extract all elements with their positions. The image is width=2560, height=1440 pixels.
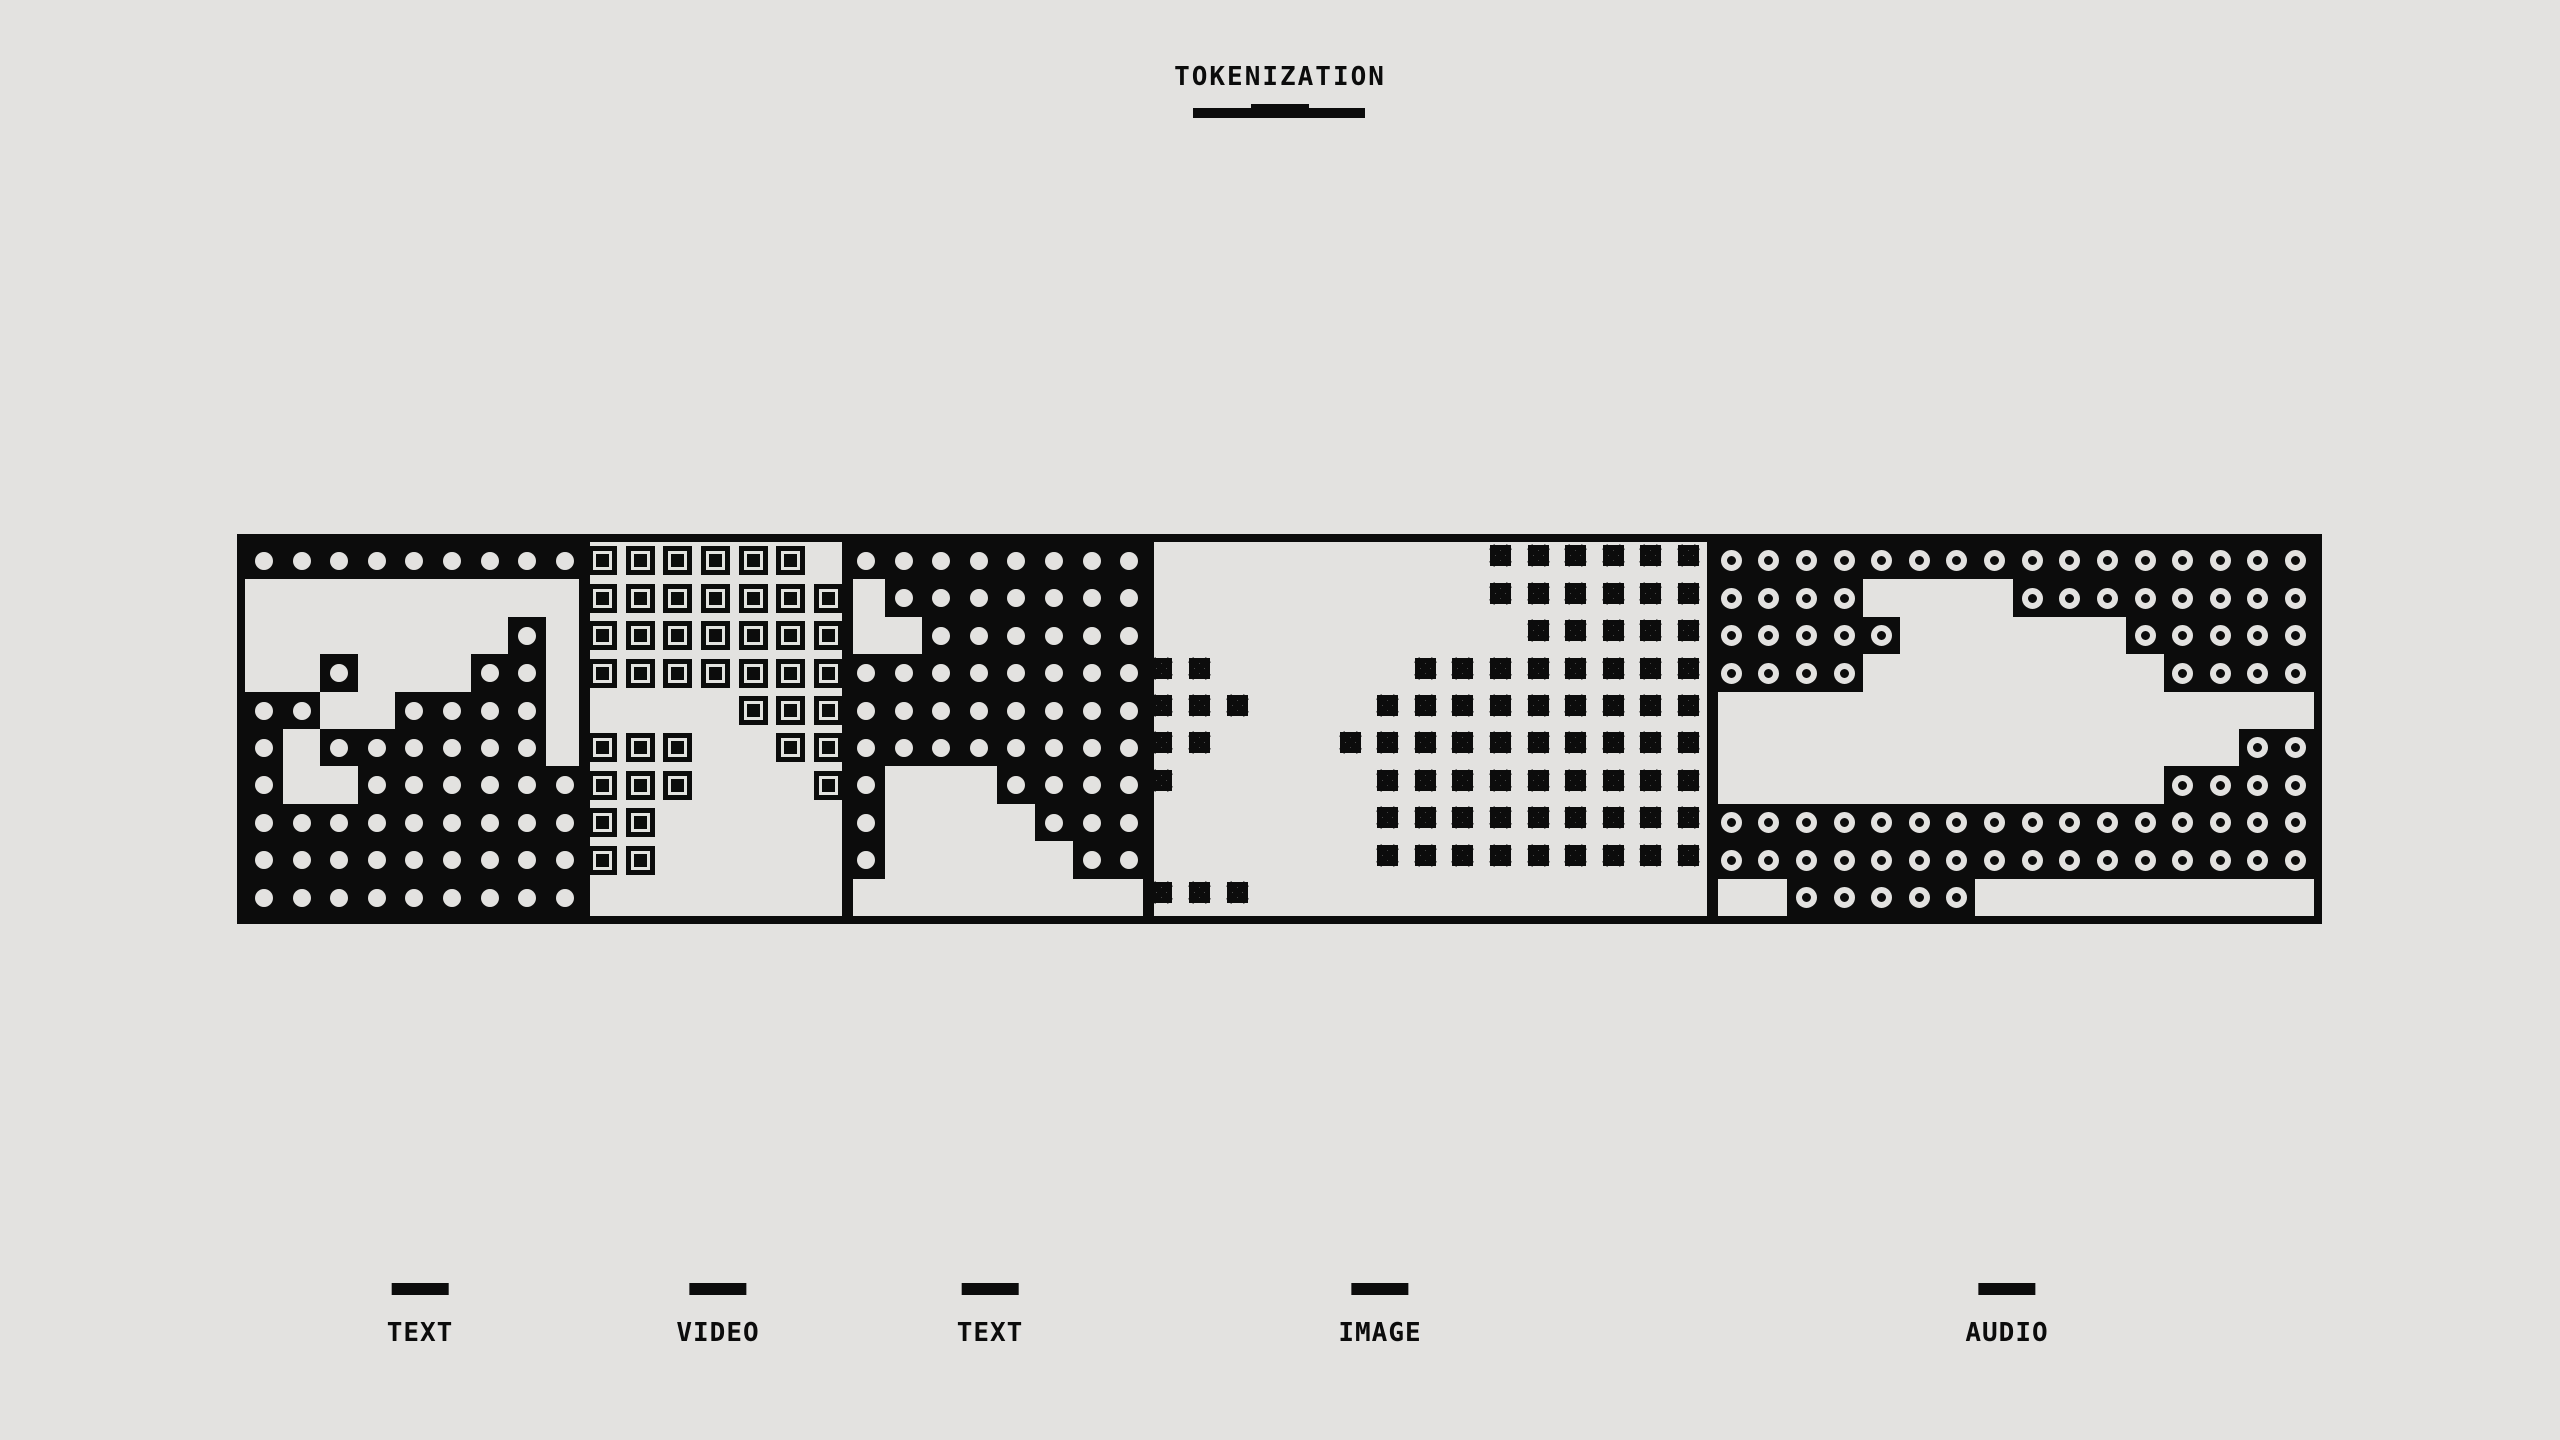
image-token-cell: [1637, 692, 1674, 729]
audio-token-cell: [2126, 579, 2164, 617]
audio-token-cell: [1975, 542, 2013, 579]
empty-cell: [772, 766, 809, 804]
text-token-cell: [245, 841, 283, 879]
text-token-cell: [395, 841, 433, 879]
empty-cell: [1411, 617, 1449, 654]
image-token-cell: [1637, 654, 1674, 692]
image-token-cell: [1524, 729, 1562, 766]
text-token-cell: [922, 729, 960, 766]
x-icon: [1603, 545, 1624, 566]
text-token-cell: [320, 542, 358, 579]
x-icon: [1377, 732, 1398, 753]
x-icon: [1377, 695, 1398, 716]
x-icon: [1603, 732, 1624, 753]
text-token-cell: [471, 879, 508, 916]
empty-cell: [1787, 692, 1825, 729]
text-token-cell: [358, 729, 395, 766]
text-token-cell: [1035, 766, 1073, 804]
audio-token-cell: [1750, 804, 1787, 841]
empty-cell: [696, 766, 734, 804]
empty-cell: [1185, 804, 1223, 841]
empty-cell: [1938, 654, 1975, 692]
x-icon: [1189, 732, 1210, 753]
empty-cell: [1298, 617, 1336, 654]
audio-token-cell: [2201, 841, 2239, 879]
text-token-cell: [395, 766, 433, 804]
audio-token-cell: [1863, 617, 1900, 654]
image-token-cell: [1524, 766, 1562, 804]
empty-cell: [2051, 654, 2088, 692]
x-icon: [1678, 770, 1699, 791]
audio-token-cell: [2051, 542, 2088, 579]
empty-cell: [1374, 579, 1411, 617]
x-icon: [1340, 732, 1361, 753]
text-token-cell: [997, 542, 1035, 579]
x-icon: [1565, 807, 1586, 828]
empty-cell: [1336, 654, 1374, 692]
legend-item-text: TEXT: [387, 1283, 454, 1348]
text-token-cell: [508, 841, 546, 879]
segment-seam: [1143, 534, 1154, 924]
empty-cell: [1863, 579, 1900, 617]
image-token-cell: [1486, 766, 1524, 804]
audio-token-cell: [1863, 841, 1900, 879]
empty-cell: [1975, 692, 2013, 729]
image-token-cell: [1599, 617, 1637, 654]
x-icon: [1528, 845, 1549, 866]
x-icon: [1678, 658, 1699, 679]
empty-cell: [2126, 729, 2164, 766]
audio-token-cell: [1900, 841, 1938, 879]
empty-cell: [1562, 879, 1599, 916]
text-token-cell: [997, 617, 1035, 654]
text-token-cell: [922, 579, 960, 617]
text-token-cell: [433, 804, 471, 841]
video-token-cell: [772, 692, 809, 729]
empty-cell: [1637, 879, 1674, 916]
x-icon: [1189, 695, 1210, 716]
audio-token-cell: [1825, 879, 1863, 916]
empty-cell: [245, 654, 283, 692]
video-token-cell: [772, 654, 809, 692]
empty-cell: [1261, 617, 1298, 654]
x-icon: [1452, 732, 1473, 753]
empty-cell: [1336, 617, 1374, 654]
x-icon: [1227, 695, 1248, 716]
image-token-cell: [1486, 542, 1524, 579]
text-token-cell: [320, 729, 358, 766]
empty-cell: [1750, 879, 1787, 916]
empty-cell: [1261, 841, 1298, 879]
video-token-cell: [621, 729, 659, 766]
empty-cell: [395, 654, 433, 692]
empty-cell: [1449, 879, 1486, 916]
audio-token-cell: [1863, 879, 1900, 916]
legend-label: AUDIO: [1965, 1318, 2048, 1348]
text-token-cell: [885, 692, 922, 729]
empty-cell: [320, 766, 358, 804]
empty-cell: [696, 841, 734, 879]
text-token-cell: [320, 879, 358, 916]
image-token-cell: [1411, 729, 1449, 766]
x-icon: [1151, 732, 1172, 753]
x-icon: [1528, 620, 1549, 641]
x-icon: [1528, 770, 1549, 791]
empty-cell: [997, 804, 1035, 841]
empty-cell: [1938, 692, 1975, 729]
x-icon: [1678, 620, 1699, 641]
image-token-cell: [1524, 692, 1562, 729]
text-token-cell: [1035, 804, 1073, 841]
empty-cell: [1336, 841, 1374, 879]
legend-item-image: IMAGE: [1338, 1283, 1421, 1348]
audio-token-cell: [2164, 579, 2201, 617]
text-token-cell: [283, 841, 320, 879]
image-token-cell: [1599, 542, 1637, 579]
audio-token-cell: [2201, 579, 2239, 617]
empty-cell: [1261, 804, 1298, 841]
text-token-cell: [433, 729, 471, 766]
modality-legend: TEXTVIDEOTEXTIMAGEAUDIO: [0, 1283, 2560, 1363]
empty-cell: [2013, 766, 2051, 804]
text-token-cell: [1035, 729, 1073, 766]
empty-cell: [1261, 692, 1298, 729]
title-underline-notch: [1251, 104, 1309, 118]
audio-token-cell: [1750, 617, 1787, 654]
text-token-cell: [320, 654, 358, 692]
audio-token-cell: [1750, 841, 1787, 879]
image-token-cell: [1599, 766, 1637, 804]
video-token-cell: [659, 729, 696, 766]
audio-token-cell: [1825, 841, 1863, 879]
image-token-cell: [1562, 542, 1599, 579]
text-token-cell: [1073, 579, 1110, 617]
x-icon: [1565, 620, 1586, 641]
text-token-cell: [997, 766, 1035, 804]
audio-token-cell: [2051, 841, 2088, 879]
empty-cell: [433, 654, 471, 692]
image-token-cell: [1486, 692, 1524, 729]
video-token-cell: [734, 542, 772, 579]
empty-cell: [1336, 542, 1374, 579]
audio-token-cell: [1750, 654, 1787, 692]
legend-dash: [392, 1283, 449, 1295]
empty-cell: [1298, 692, 1336, 729]
audio-token-cell: [2126, 841, 2164, 879]
audio-token-cell: [2126, 617, 2164, 654]
text-token-cell: [358, 879, 395, 916]
empty-cell: [2088, 654, 2126, 692]
empty-cell: [508, 579, 546, 617]
text-token-cell: [1073, 841, 1110, 879]
audio-token-cell: [2239, 654, 2276, 692]
image-token-cell: [1637, 766, 1674, 804]
empty-cell: [1336, 692, 1374, 729]
image-token-cell: [1411, 804, 1449, 841]
video-token-cell: [772, 579, 809, 617]
empty-cell: [1223, 766, 1261, 804]
image-token-cell: [1562, 654, 1599, 692]
empty-cell: [1298, 879, 1336, 916]
empty-cell: [1298, 841, 1336, 879]
text-token-cell: [960, 542, 997, 579]
empty-cell: [734, 804, 772, 841]
empty-cell: [320, 579, 358, 617]
image-token-cell: [1486, 729, 1524, 766]
empty-cell: [997, 879, 1035, 916]
empty-cell: [1374, 617, 1411, 654]
empty-cell: [283, 654, 320, 692]
empty-cell: [1975, 579, 2013, 617]
empty-cell: [659, 692, 696, 729]
video-token-cell: [659, 542, 696, 579]
empty-cell: [2088, 617, 2126, 654]
empty-cell: [1223, 579, 1261, 617]
image-token-cell: [1562, 766, 1599, 804]
empty-cell: [2013, 729, 2051, 766]
text-token-cell: [508, 879, 546, 916]
audio-token-cell: [2088, 542, 2126, 579]
text-token-cell: [358, 766, 395, 804]
audio-token-cell: [2088, 804, 2126, 841]
audio-token-cell: [1825, 542, 1863, 579]
empty-cell: [1863, 729, 1900, 766]
text-token-cell: [885, 542, 922, 579]
text-token-cell: [245, 804, 283, 841]
empty-cell: [1750, 692, 1787, 729]
empty-cell: [358, 579, 395, 617]
image-token-cell: [1637, 729, 1674, 766]
empty-cell: [1863, 654, 1900, 692]
text-token-cell: [508, 617, 546, 654]
text-token-cell: [997, 692, 1035, 729]
image-token-cell: [1223, 692, 1261, 729]
x-icon: [1640, 695, 1661, 716]
x-icon: [1565, 770, 1586, 791]
x-icon: [1528, 658, 1549, 679]
legend-dash: [962, 1283, 1019, 1295]
text-token-cell: [1035, 692, 1073, 729]
legend-item-text: TEXT: [957, 1283, 1024, 1348]
text-token-cell: [283, 879, 320, 916]
empty-cell: [1486, 879, 1524, 916]
video-token-cell: [696, 542, 734, 579]
empty-cell: [1261, 654, 1298, 692]
empty-cell: [2013, 617, 2051, 654]
empty-cell: [960, 879, 997, 916]
image-token-cell: [1524, 804, 1562, 841]
empty-cell: [1336, 579, 1374, 617]
legend-item-video: VIDEO: [676, 1283, 759, 1348]
legend-dash: [690, 1283, 747, 1295]
empty-cell: [1336, 766, 1374, 804]
empty-cell: [885, 804, 922, 841]
empty-cell: [1223, 654, 1261, 692]
empty-cell: [885, 841, 922, 879]
x-icon: [1415, 732, 1436, 753]
text-token-cell: [1035, 542, 1073, 579]
video-token-cell: [772, 542, 809, 579]
x-icon: [1565, 732, 1586, 753]
legend-label: IMAGE: [1338, 1318, 1421, 1348]
empty-cell: [2051, 617, 2088, 654]
audio-token-cell: [1825, 579, 1863, 617]
x-icon: [1640, 807, 1661, 828]
empty-cell: [696, 692, 734, 729]
empty-cell: [1975, 766, 2013, 804]
image-token-cell: [1336, 729, 1374, 766]
legend-label: TEXT: [957, 1318, 1024, 1348]
audio-token-cell: [1975, 804, 2013, 841]
x-icon: [1227, 882, 1248, 903]
empty-cell: [734, 729, 772, 766]
empty-cell: [1486, 617, 1524, 654]
empty-cell: [1900, 579, 1938, 617]
x-icon: [1640, 620, 1661, 641]
segment-seam: [1707, 534, 1718, 924]
image-token-cell: [1185, 654, 1223, 692]
video-token-cell: [621, 654, 659, 692]
x-icon: [1565, 845, 1586, 866]
x-icon: [1603, 658, 1624, 679]
image-token-cell: [1524, 579, 1562, 617]
empty-cell: [1298, 804, 1336, 841]
empty-cell: [1938, 766, 1975, 804]
text-token-cell: [997, 729, 1035, 766]
empty-cell: [2013, 654, 2051, 692]
audio-token-cell: [1938, 804, 1975, 841]
empty-cell: [1900, 654, 1938, 692]
empty-cell: [395, 579, 433, 617]
empty-cell: [283, 579, 320, 617]
empty-cell: [960, 804, 997, 841]
empty-cell: [659, 804, 696, 841]
audio-token-cell: [2051, 804, 2088, 841]
empty-cell: [659, 879, 696, 916]
empty-cell: [245, 617, 283, 654]
text-token-cell: [320, 804, 358, 841]
empty-cell: [1336, 804, 1374, 841]
audio-token-cell: [1787, 617, 1825, 654]
empty-cell: [2164, 879, 2201, 916]
image-token-cell: [1524, 542, 1562, 579]
x-icon: [1678, 845, 1699, 866]
x-icon: [1603, 695, 1624, 716]
audio-token-cell: [2164, 654, 2201, 692]
image-token-cell: [1562, 617, 1599, 654]
empty-cell: [2164, 729, 2201, 766]
empty-cell: [320, 617, 358, 654]
empty-cell: [696, 879, 734, 916]
text-token-cell: [960, 692, 997, 729]
empty-cell: [960, 841, 997, 879]
audio-token-cell: [1825, 804, 1863, 841]
video-token-cell: [772, 617, 809, 654]
legend-dash: [1979, 1283, 2036, 1295]
empty-cell: [2013, 692, 2051, 729]
audio-token-cell: [1900, 542, 1938, 579]
empty-cell: [1374, 879, 1411, 916]
text-token-cell: [471, 841, 508, 879]
empty-cell: [245, 579, 283, 617]
audio-token-cell: [2276, 617, 2314, 654]
audio-token-cell: [2239, 617, 2276, 654]
audio-token-cell: [1900, 879, 1938, 916]
empty-cell: [1863, 766, 1900, 804]
x-icon: [1603, 807, 1624, 828]
x-icon: [1415, 658, 1436, 679]
empty-cell: [2088, 729, 2126, 766]
empty-cell: [1449, 542, 1486, 579]
image-token-cell: [1411, 654, 1449, 692]
image-token-cell: [1562, 841, 1599, 879]
image-token-cell: [1185, 879, 1223, 916]
video-token-cell: [696, 579, 734, 617]
empty-cell: [2088, 879, 2126, 916]
audio-token-cell: [2201, 617, 2239, 654]
legend-item-audio: AUDIO: [1965, 1283, 2048, 1348]
text-token-cell: [433, 766, 471, 804]
audio-token-cell: [2239, 729, 2276, 766]
audio-token-cell: [2013, 841, 2051, 879]
text-token-cell: [471, 692, 508, 729]
empty-cell: [1825, 766, 1863, 804]
video-token-cell: [659, 617, 696, 654]
image-token-cell: [1449, 766, 1486, 804]
text-token-cell: [433, 841, 471, 879]
video-token-cell: [734, 692, 772, 729]
empty-cell: [1975, 654, 2013, 692]
text-token-cell: [885, 729, 922, 766]
text-token-cell: [358, 542, 395, 579]
x-icon: [1528, 732, 1549, 753]
text-token-cell: [508, 654, 546, 692]
audio-token-cell: [2276, 729, 2314, 766]
empty-cell: [1938, 617, 1975, 654]
empty-cell: [922, 879, 960, 916]
audio-token-cell: [2276, 542, 2314, 579]
image-token-cell: [1637, 542, 1674, 579]
x-icon: [1565, 695, 1586, 716]
image-token-cell: [1562, 692, 1599, 729]
x-icon: [1603, 620, 1624, 641]
empty-cell: [358, 654, 395, 692]
empty-cell: [358, 692, 395, 729]
audio-token-cell: [1787, 804, 1825, 841]
audio-token-cell: [2239, 841, 2276, 879]
text-token-cell: [922, 692, 960, 729]
text-token-cell: [960, 729, 997, 766]
empty-cell: [1449, 579, 1486, 617]
image-token-cell: [1599, 729, 1637, 766]
empty-cell: [1374, 542, 1411, 579]
x-icon: [1528, 807, 1549, 828]
empty-cell: [1900, 729, 1938, 766]
x-icon: [1640, 583, 1661, 604]
empty-cell: [2239, 692, 2276, 729]
audio-token-cell: [2164, 542, 2201, 579]
x-icon: [1640, 658, 1661, 679]
text-token-cell: [1073, 692, 1110, 729]
empty-cell: [1185, 766, 1223, 804]
x-icon: [1490, 658, 1511, 679]
x-icon: [1640, 545, 1661, 566]
audio-token-cell: [1787, 542, 1825, 579]
empty-cell: [1298, 542, 1336, 579]
image-token-cell: [1637, 804, 1674, 841]
text-token-cell: [245, 729, 283, 766]
audio-token-cell: [2276, 841, 2314, 879]
